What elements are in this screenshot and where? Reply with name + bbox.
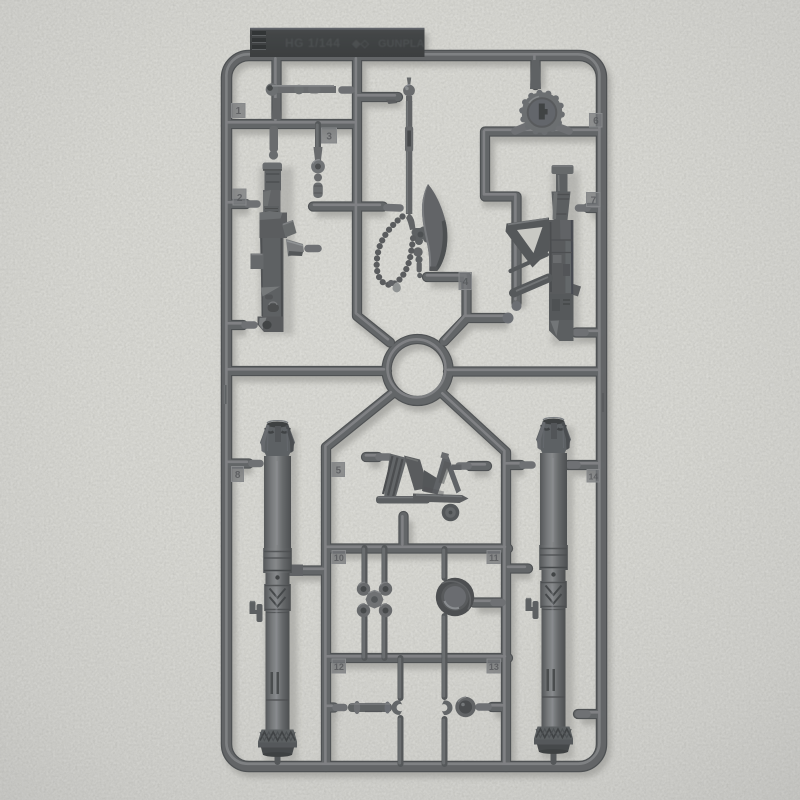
svg-text:11: 11 <box>489 553 499 563</box>
svg-text:10: 10 <box>334 553 344 563</box>
svg-text:13: 13 <box>489 662 499 672</box>
svg-text:7: 7 <box>591 196 597 207</box>
svg-text:2: 2 <box>237 193 243 204</box>
svg-text:3: 3 <box>326 132 332 143</box>
svg-text:4: 4 <box>463 277 469 288</box>
svg-text:GUNPLA: GUNPLA <box>378 38 425 50</box>
svg-text:14: 14 <box>589 472 599 482</box>
svg-text:1: 1 <box>236 106 242 117</box>
svg-text:5: 5 <box>336 466 342 477</box>
svg-text:◆◇: ◆◇ <box>351 38 369 50</box>
svg-text:8: 8 <box>235 470 241 481</box>
svg-text:6: 6 <box>593 116 599 127</box>
svg-text:12: 12 <box>334 662 344 672</box>
svg-text:HG 1/144: HG 1/144 <box>285 36 340 50</box>
